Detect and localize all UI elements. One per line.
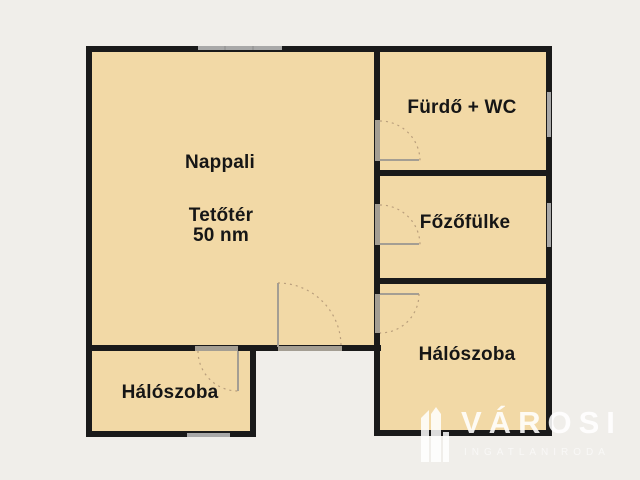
door-opening-entrance — [278, 346, 342, 351]
door-leaf-kitchenette — [380, 243, 419, 245]
wall-bathroom-kitchenette-divider — [374, 170, 552, 176]
window-bedroom-left-bottom — [187, 433, 230, 437]
door-opening-bedroom-right — [375, 294, 380, 333]
wall-kitchenette-bedroom-divider — [374, 278, 552, 284]
wall-bedroom-left-bottom — [86, 431, 256, 437]
room-label-living-area: 50 nm — [193, 225, 249, 247]
window-living-top — [198, 46, 282, 50]
room-living — [86, 46, 381, 351]
watermark-brand: VÁROSI — [461, 405, 622, 441]
floor-plan: Nappali Tetőtér 50 nm Fürdő + WC Főzőfül… — [0, 0, 640, 480]
door-opening-kitchenette — [375, 204, 380, 245]
agency-watermark: VÁROSI INGATLANIRODA — [415, 397, 640, 475]
wall-left-exterior — [86, 46, 92, 437]
window-bathroom-right — [547, 92, 551, 137]
wall-top-right-column — [374, 46, 552, 52]
window-mullion — [224, 46, 226, 50]
window-mullion — [252, 46, 254, 50]
door-leaf-bathroom — [380, 159, 419, 161]
window-kitchenette-right — [547, 203, 551, 247]
door-opening-bathroom — [375, 120, 380, 161]
room-label-bathroom: Fürdő + WC — [407, 97, 516, 119]
buildings-icon — [417, 402, 453, 468]
door-opening-bedroom-left — [195, 346, 238, 351]
door-leaf-bedroom-right — [380, 293, 419, 295]
room-label-bedroom-left: Hálószoba — [122, 382, 219, 404]
wall-bedroom-left-right — [250, 345, 256, 437]
door-leaf-entrance — [277, 283, 279, 347]
room-label-living: Nappali — [185, 152, 255, 174]
watermark-tagline: INGATLANIRODA — [464, 447, 610, 458]
door-leaf-bedroom-left — [237, 351, 239, 391]
room-label-kitchenette: Főzőfülke — [420, 212, 510, 234]
room-label-living-type: Tetőtér — [189, 205, 253, 227]
room-label-bedroom-right: Hálószoba — [419, 344, 516, 366]
